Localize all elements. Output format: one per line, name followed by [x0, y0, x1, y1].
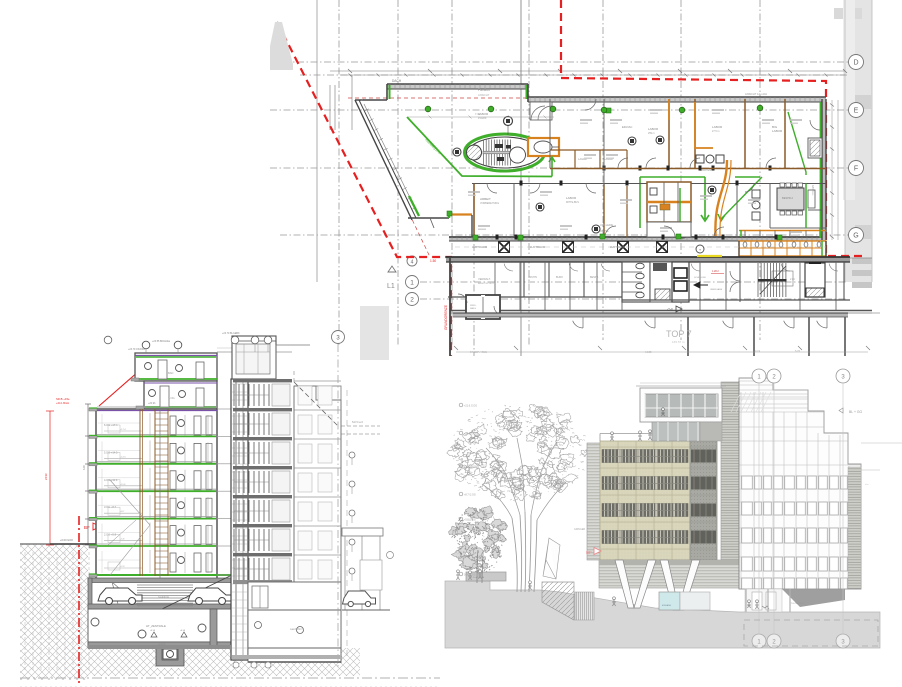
svg-text:LABOR: LABOR: [648, 127, 659, 131]
svg-text:HT_ZENTRALE: HT_ZENTRALE: [146, 624, 166, 628]
svg-text:E: E: [854, 108, 859, 115]
svg-text:2.04: 2.04: [790, 278, 795, 281]
svg-text:GRINGER: GRINGER: [574, 528, 585, 531]
svg-text:259 m: 259 m: [648, 132, 655, 135]
svg-text:ANSICHT: ANSICHT: [478, 93, 490, 97]
svg-text:1: 1: [410, 280, 414, 287]
svg-text:ANSICHT 12 m/2H: ANSICHT 12 m/2H: [745, 92, 767, 96]
svg-text:7.74: 7.74: [475, 112, 481, 116]
svg-text:+8.7 /2.OG: +8.7 /2.OG: [464, 494, 476, 497]
svg-text:F: F: [854, 166, 858, 173]
svg-text:24.93: 24.93: [44, 473, 48, 480]
svg-text:ARCHIV: ARCHIV: [528, 276, 537, 279]
svg-text:ARBEIT: ARBEIT: [480, 197, 491, 201]
svg-text:+5.8 /2.OG: +5.8 /2.OG: [464, 519, 476, 522]
svg-text:EINGANG: EINGANG: [662, 604, 672, 607]
svg-text:BESPR.2: BESPR.2: [782, 196, 794, 200]
svg-text:4: 4: [411, 260, 414, 266]
svg-text:VORBEREITUNG: VORBEREITUNG: [480, 202, 499, 205]
svg-text:BURO: BURO: [556, 276, 563, 279]
svg-text:PCR/III: PCR/III: [478, 116, 487, 120]
svg-text:BF: BF: [586, 550, 592, 555]
svg-text:WIND-: WIND-: [470, 305, 477, 307]
svg-text:3.74: 3.74: [755, 349, 761, 353]
svg-text:(TG ZUFAHRT): (TG ZUFAHRT): [790, 602, 805, 605]
svg-text:SCHLEUSE: SCHLEUSE: [694, 277, 706, 279]
svg-text:BAD: BAD: [168, 371, 173, 375]
svg-text:UMKLEIDE: UMKLEIDE: [600, 223, 614, 227]
svg-text:GRUNDGRENZE: GRUNDGRENZE: [444, 305, 448, 330]
svg-text:LABOR: LABOR: [566, 196, 577, 200]
svg-text:165.57 m: 165.57 m: [672, 340, 685, 344]
svg-text:67.000* / 4WG: 67.000* / 4WG: [470, 350, 487, 354]
svg-text:+44.1 BmH: +44.1 BmH: [56, 401, 69, 405]
svg-text:3.04: 3.04: [83, 465, 86, 470]
svg-text:EDV/AC: EDV/AC: [622, 125, 632, 129]
svg-text:1.28.2: 1.28.2: [712, 270, 719, 273]
svg-text:LUFTRAUM: LUFTRAUM: [530, 245, 546, 249]
svg-text:BESPR.: BESPR.: [590, 276, 599, 279]
svg-text:L1: L1: [387, 283, 395, 290]
svg-text:2: 2: [410, 297, 414, 304]
svg-text:UBERGABE: UBERGABE: [710, 288, 723, 291]
svg-text:-OS: -OS: [666, 307, 673, 312]
svg-text:T: T: [699, 248, 701, 252]
svg-text:ABSTELL: ABSTELL: [811, 185, 814, 196]
svg-text:FANG: FANG: [470, 307, 476, 310]
svg-text:Pavillon: Pavillon: [478, 88, 490, 92]
svg-text:GARAGE: GARAGE: [158, 595, 169, 599]
svg-text:+23.55 BD/Attika: +23.55 BD/Attika: [152, 340, 171, 343]
svg-text:+21.6 /2.OG: +21.6 /2.OG: [464, 405, 477, 408]
svg-text:LUFTRAUM: LUFTRAUM: [610, 245, 626, 249]
svg-text:5x0.5 tech: 5x0.5 tech: [352, 421, 364, 424]
svg-text:1.50: 1.50: [430, 259, 436, 263]
svg-text:LABOR: LABOR: [712, 125, 723, 129]
svg-text:-6.14: -6.14: [180, 630, 186, 632]
svg-text:4.155: 4.155: [645, 350, 652, 354]
svg-text:TOP 7: TOP 7: [666, 329, 692, 339]
svg-text:BL + GG: BL + GG: [849, 410, 863, 414]
svg-text:SD.B +15e: SD.B +15e: [56, 397, 70, 401]
svg-text:MITTE-BUS: MITTE-BUS: [566, 201, 579, 204]
svg-text:+20.93: +20.93: [148, 402, 156, 405]
svg-text:LUFTRAUM: LUFTRAUM: [472, 245, 488, 249]
svg-text:ARBEITSPLATZ: ARBEITSPLATZ: [478, 282, 495, 285]
svg-text:+23.79 BLGEBK: +23.79 BLGEBK: [222, 332, 240, 335]
svg-text:DACH: DACH: [392, 79, 402, 83]
svg-text:-6.14: -6.14: [150, 630, 156, 632]
svg-text:D: D: [853, 60, 858, 67]
svg-text:7.OG: 7.OG: [168, 396, 175, 400]
svg-text:dim: dim: [865, 484, 869, 486]
svg-text:G: G: [853, 233, 858, 240]
svg-text:5.76: 5.76: [795, 349, 801, 353]
svg-text:VERWALT.: VERWALT.: [478, 277, 491, 281]
svg-text:27.5 m: 27.5 m: [712, 130, 719, 133]
svg-text:wasch360 m: wasch360 m: [290, 628, 303, 631]
svg-text:BF: BF: [84, 525, 90, 530]
svg-text:LABOR: LABOR: [772, 129, 783, 133]
svg-text:WARTEN: WARTEN: [700, 168, 711, 172]
svg-text:+0.00 GOK: +0.00 GOK: [60, 538, 73, 542]
svg-text:+23.79 OK/RFB: +23.79 OK/RFB: [128, 348, 145, 351]
